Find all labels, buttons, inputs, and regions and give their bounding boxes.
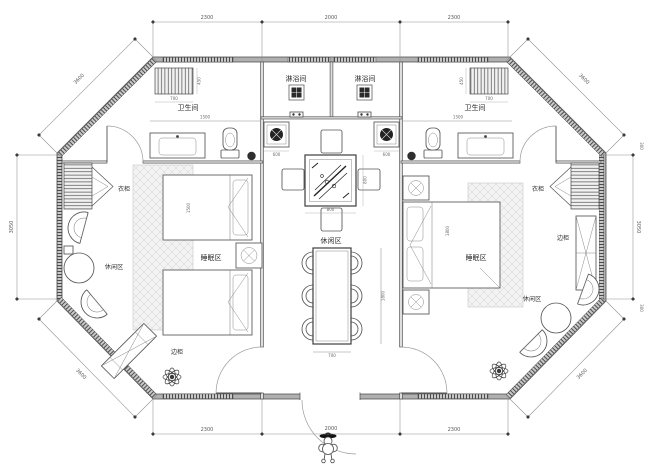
leisure-center-label: 休闲区 xyxy=(321,236,342,245)
shower-left-label: 淋浴间 xyxy=(286,74,307,83)
bath-left-dim: 1500 xyxy=(200,115,211,120)
bath-right-dim: 1500 xyxy=(453,115,464,120)
bath-right-label: 卫生间 xyxy=(465,103,486,112)
tea-table-dim-w: 800 xyxy=(327,207,335,212)
toilet-icon xyxy=(221,128,239,158)
stool-top xyxy=(321,130,342,153)
dining-dim-w: 700 xyxy=(328,353,336,358)
shower-right-label: 淋浴间 xyxy=(355,74,376,83)
nightstand-top xyxy=(403,176,429,200)
toilet-icon xyxy=(424,128,442,158)
shower-valve-icon xyxy=(290,112,303,117)
shelf-unit xyxy=(155,68,193,94)
dim-top-1: 2300 xyxy=(201,15,214,21)
bed-dim: 1500 xyxy=(186,202,191,213)
round-chair xyxy=(64,253,94,283)
bed-single-2 xyxy=(163,270,252,335)
stool-right xyxy=(358,169,380,190)
floor-plan-svg: 淋浴间 淋浴间 600 600 700 450 卫生间 1500 xyxy=(0,0,651,473)
dim-bottom-1: 2300 xyxy=(201,427,214,433)
floor-drain-icon xyxy=(357,85,372,100)
dim-left: 3050 xyxy=(9,221,15,234)
dim-offset-tr: 300 xyxy=(639,142,644,150)
dim-offset-br: 300 xyxy=(639,304,644,312)
shelf-depth-dim: 450 xyxy=(459,77,464,85)
nightstand-bottom xyxy=(403,290,429,314)
cabinet-left-label: 边柜 xyxy=(171,348,183,356)
wardrobe-left-label: 衣柜 xyxy=(118,185,130,193)
round-chair xyxy=(541,303,571,333)
nightstand xyxy=(236,243,262,268)
sleep-left-label: 睡眠区 xyxy=(201,254,222,262)
floor-drain-icon xyxy=(289,85,304,100)
stool-left xyxy=(282,169,304,190)
bed-dim: 1800 xyxy=(445,225,450,236)
floor-drain-icon xyxy=(247,152,255,160)
dim-right: 3050 xyxy=(635,221,641,234)
dim-bottom-2: 2000 xyxy=(325,426,338,432)
dining-dim-l: 1800 xyxy=(381,290,386,301)
dim-bottom-3: 2300 xyxy=(448,427,461,433)
vanity-right xyxy=(458,133,513,158)
vanity-left xyxy=(150,133,205,158)
cabinet-right-label: 边柜 xyxy=(557,234,569,242)
bed-double xyxy=(403,202,500,288)
bath-left-label: 卫生间 xyxy=(178,103,199,112)
floor-plan-canvas: 淋浴间 淋浴间 600 600 700 450 卫生间 1500 xyxy=(0,0,651,473)
shelf-dim: 700 xyxy=(170,96,178,101)
sleep-right-label: 睡眠区 xyxy=(466,254,487,262)
leisure-right-label: 休闲区 xyxy=(523,295,542,303)
shelf-dim: 700 xyxy=(485,96,493,101)
dim-top-2: 2000 xyxy=(325,15,338,21)
basin-right-dim: 600 xyxy=(383,152,391,157)
shower-valve-icon xyxy=(358,112,371,117)
shelf-unit xyxy=(470,68,508,94)
wardrobe-right-label: 衣柜 xyxy=(532,185,544,193)
tea-table-dim-h: 800 xyxy=(363,176,368,184)
floor-drain-icon xyxy=(407,152,415,160)
entrance-gap xyxy=(300,392,360,400)
dim-top-3: 2300 xyxy=(448,15,461,21)
dining-table xyxy=(313,248,351,344)
bed-single-1 xyxy=(163,175,252,240)
basin-left-dim: 600 xyxy=(273,152,281,157)
shelf-depth-dim: 450 xyxy=(197,77,202,85)
leisure-left-label: 休闲区 xyxy=(105,263,124,271)
